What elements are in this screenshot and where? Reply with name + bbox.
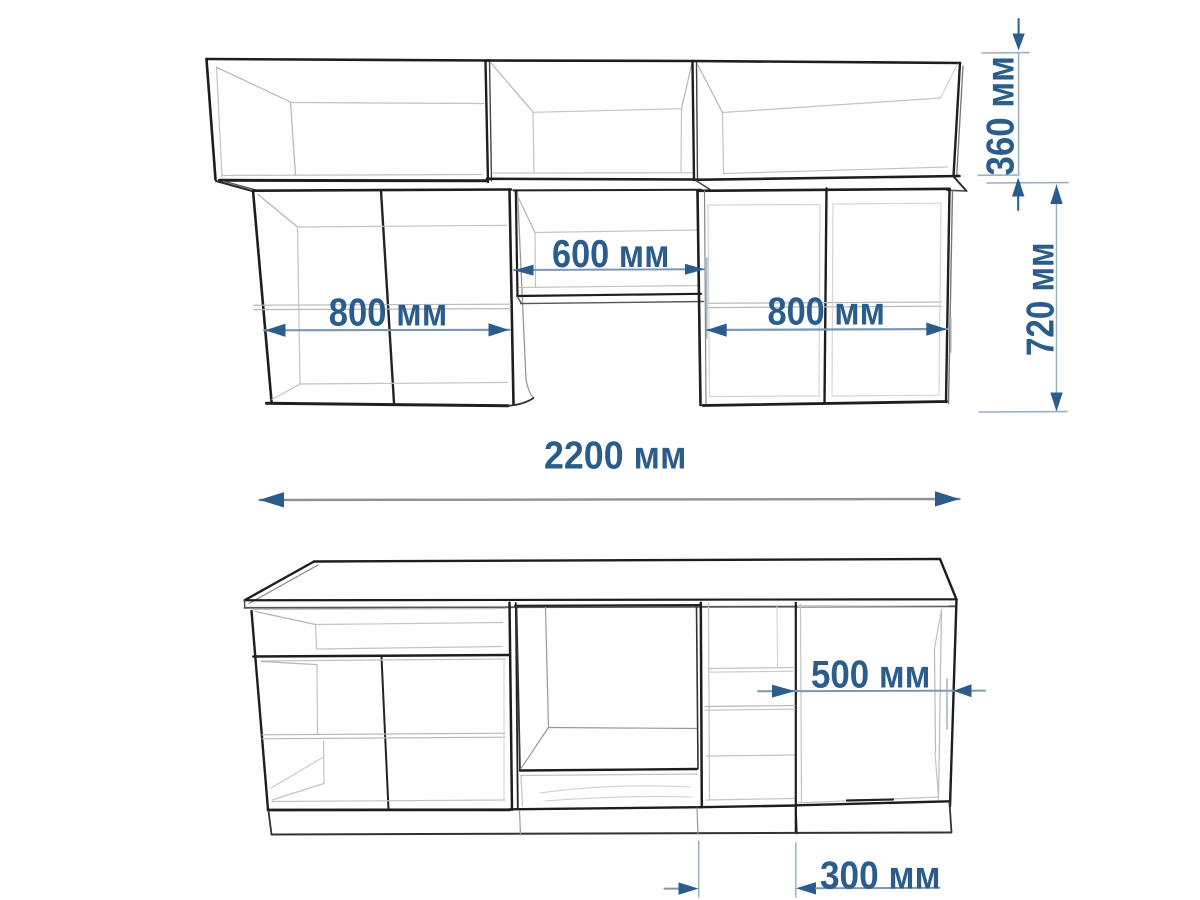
svg-text:2200 мм: 2200 мм [544, 435, 687, 478]
svg-text:720 мм: 720 мм [1020, 243, 1063, 357]
svg-text:360 мм: 360 мм [980, 56, 1023, 176]
svg-text:300 мм: 300 мм [820, 855, 941, 898]
svg-text:500 мм: 500 мм [811, 654, 931, 697]
svg-text:800 мм: 800 мм [768, 291, 886, 334]
svg-text:600 мм: 600 мм [552, 233, 670, 276]
svg-text:800 мм: 800 мм [329, 292, 448, 335]
